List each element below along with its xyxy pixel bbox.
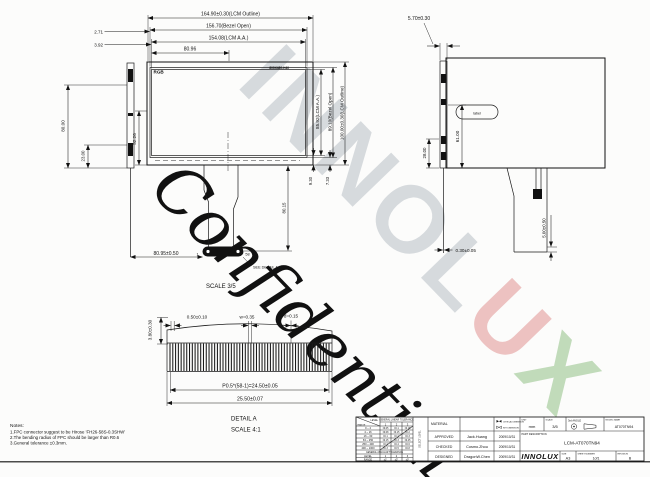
dim-fpc-x: 80.95±0.50 (154, 251, 179, 257)
rear-fpc-left (507, 168, 514, 252)
tol-linear-header: GENERAL LINEAR TOLERANCE (379, 419, 414, 422)
signature-role: APPROVED (435, 435, 454, 439)
unit-label: UNIT (522, 420, 528, 422)
tol-angular-header: GENERAL ANGULAR TOLERANCE (366, 451, 404, 454)
side-view-left: 80.00 23.00 (61, 63, 135, 257)
tolerance-value: ±0.4 (394, 444, 399, 446)
dim-side-lower: 23.00 (81, 150, 86, 162)
tolerance-value: ±0.2 (405, 432, 410, 434)
tolerance-value: ±0.3 (394, 440, 399, 442)
signature-role: DESIGNED (435, 455, 453, 459)
dim-aa-left: 3.92 (94, 43, 103, 48)
dim-aa-width: 154.08(LCM A.A.) (209, 36, 249, 42)
rgb-label: RGB (154, 70, 165, 75)
dim-right-upper: 61.00 (455, 130, 460, 142)
tolerance-range: 16 ~ 63 (364, 434, 373, 438)
dim-detail-total: 25.50±0.07 (237, 397, 263, 403)
signature-name: Cosmo.Zhou (466, 445, 488, 449)
dim-bezel-width: 156.70(Bezel Open) (206, 24, 251, 30)
tolerance-value: ±0.3 (383, 448, 388, 450)
watermark-logo: INNOLUX (220, 26, 622, 437)
tolerance-range: 63 ~ 250 (363, 438, 374, 442)
notes: Notes: 1.FPC connector suggest to be Hir… (10, 423, 125, 446)
unit-value: mm (529, 424, 536, 429)
note-line: 2.The bending radius of FPC should be la… (10, 435, 120, 440)
scale-value: 3/5 (552, 424, 558, 429)
pin-first-label: 1 (196, 253, 198, 257)
pin-last-label: 58 (245, 253, 249, 257)
dim-detail-first: 0.50±0.10 (187, 315, 208, 320)
model-name-value: AT070TN94 (615, 425, 634, 429)
signature-date: 2009/10/31 (499, 445, 516, 449)
detail-scale: SCALE 4:1 (231, 428, 261, 434)
note-line: 1.FPC connector suggest to be Hirose 'FH… (10, 430, 125, 435)
dim-side-height: 80.00 (61, 120, 66, 132)
tolerance-value: ±0.45 (405, 440, 411, 442)
dim-fpc-length: 80.15 (282, 202, 287, 214)
see-detail-label: SEE DETAIL A (253, 266, 278, 270)
rear-body (446, 58, 605, 168)
model-name-label: MODEL NAME (606, 419, 621, 422)
note-line: 3.General tolerance ±0.3mm. (10, 441, 67, 446)
sheet-value: 1of1 (593, 456, 600, 460)
signature-name: Jack.Huang (467, 435, 487, 439)
dim-rear-fpc-bottom: 5.00±0.50 (542, 218, 547, 238)
rear-label-text: label (473, 112, 481, 116)
dim-outline-height: 100.00±0.30(LCM Outline) (340, 85, 345, 140)
title-block: LEVEL RANGE GENERAL LINEAR TOLERANCE 1 2… (356, 417, 644, 462)
tolerance-value: ±0.5 (394, 448, 399, 450)
angle-label: 3rd ANGLE (568, 419, 581, 423)
dim-outline-width: 164.90±0.30(LCM Outline) (201, 12, 260, 18)
tolerance-range: 400 ~ 1000 (361, 446, 375, 450)
material-label: MATERIAL (431, 422, 448, 426)
signature-name: DragonW.Chen (464, 455, 490, 459)
dim-thickness: 5.70±0.30 (408, 16, 430, 22)
tol-select-label: SELECT LEVEL (419, 430, 422, 448)
drawing-canvas: INNOLUX Confidential RGB 800X480-H40 1 5… (0, 0, 650, 477)
tol-angular-level-label: LEVEL (364, 455, 372, 458)
dim-right-lower: 28.00 (422, 147, 427, 159)
tolerance-value: ±0.08 (383, 432, 389, 434)
dim-fpc-thickness: 0.30±0.05 (456, 248, 477, 253)
front-scale-label: SCALE 3/5 (206, 284, 236, 290)
size-value: A3 (566, 456, 571, 460)
dim-bezel-left: 2.71 (94, 30, 103, 35)
tolerance-value: ±0.1 (383, 436, 388, 438)
dim-bezel-height: 89.10(Bezel Open) (328, 92, 333, 131)
dim-center: 80.96 (184, 47, 197, 53)
drawing-sheet: INNOLUX Confidential RGB 800X480-H40 1 5… (0, 0, 650, 477)
detail-title: DETAIL A (231, 417, 257, 423)
corner-marking: 800X480-H40 (269, 66, 289, 70)
tolerance-value: ±0.15 (394, 432, 400, 434)
notes-title: Notes: (10, 423, 24, 429)
dim-left-vertical: 52.26 (132, 133, 137, 145)
dim-detail-pitch: P0.5*(58-1)=24.50±0.05 (222, 384, 278, 390)
dim-detail-width: w=0.35 (240, 315, 255, 320)
scale-label: SCALE (546, 419, 554, 422)
dim-aa-bottom: 9.30 (308, 176, 313, 185)
tol-corner-bottom: RANGE (358, 423, 366, 426)
tolerance-value: ±0.6 (405, 444, 410, 446)
tolerance-value: ±0.15 (405, 428, 411, 430)
tol-angular-range-label: RANGE (364, 459, 373, 462)
revision-label: REVISION (618, 454, 629, 456)
tolerance-range: 0 ~ 4 (365, 426, 371, 430)
signature-date: 2009/10/31 (499, 455, 516, 459)
sheet-label: SHEET NUMBER (578, 454, 596, 456)
rear-fpc-stiffener (533, 189, 542, 199)
tolerance-value: ±0.15 (383, 440, 389, 442)
tolerance-value: ±0.05 (383, 428, 389, 430)
dim-detail-gap: d=0.15 (284, 314, 299, 319)
tolerance-range: 250 ~ 400 (362, 442, 374, 446)
tolerance-range: 4 ~ 16 (364, 430, 372, 434)
signature-date: 2009/10/31 (499, 435, 516, 439)
part-description-value: LCM-AT070TN94 (564, 441, 600, 446)
tolerance-value: ±0.2 (383, 444, 388, 446)
tolerance-value: ±0.1 (394, 428, 399, 430)
dim-aa-height: 85.92(LCM A.A.) (315, 95, 320, 129)
tolerance-value: ±0.2 (394, 436, 399, 438)
innolux-logo: INNOLUX (521, 452, 559, 461)
signature-role: CHECKED (436, 445, 453, 449)
part-description-label: PART DESCRIPTION (522, 432, 547, 436)
dim-bezel-bottom: 7.33 (325, 176, 330, 185)
key-dimension-label: KEY DIMENSION (503, 428, 519, 430)
size-label: SIZE (562, 454, 567, 456)
tolerance-value: ±0.8 (405, 448, 410, 450)
tol-corner-top: LEVEL (371, 419, 379, 422)
dim-detail-height: 3.80±0.30 (148, 319, 153, 340)
tolerance-value: ±0.3 (405, 436, 410, 438)
signature-rows: APPROVEDJack.Huang2009/10/31CHECKEDCosmo… (435, 435, 516, 459)
